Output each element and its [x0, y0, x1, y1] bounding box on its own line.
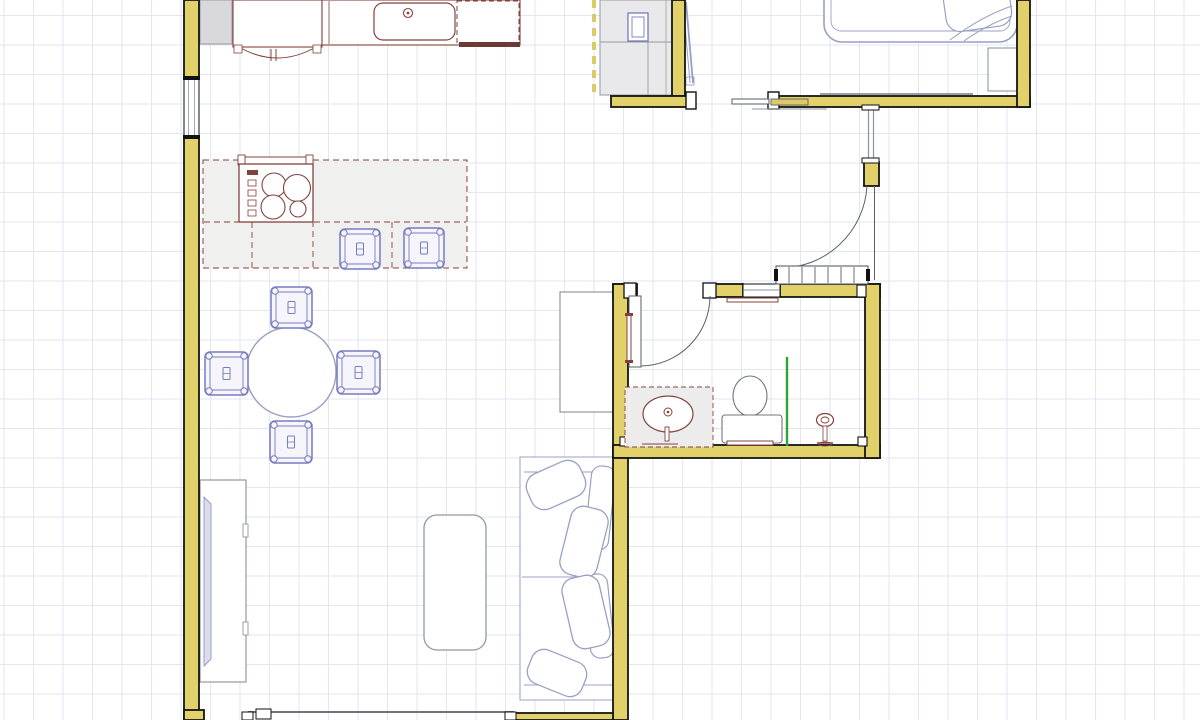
- entry-sidelight[interactable]: [862, 105, 879, 163]
- tv-screen[interactable]: [204, 497, 211, 666]
- dining-chair-bottom[interactable]: [270, 421, 312, 463]
- bath-toilet-brush[interactable]: [817, 414, 834, 447]
- kitchen-counter-sink-run[interactable]: [322, 0, 520, 45]
- wall-living-right[interactable]: [613, 458, 628, 720]
- bed[interactable]: [824, 0, 1017, 42]
- wall-hall-top-a[interactable]: [611, 96, 688, 107]
- wall-bedroom-right[interactable]: [1017, 0, 1030, 107]
- floor-plan-drawing: [0, 0, 1200, 720]
- sofa[interactable]: [520, 456, 617, 701]
- wall-left-main[interactable]: [184, 137, 199, 720]
- closet-handle-box[interactable]: [628, 13, 648, 41]
- dining-chair-top[interactable]: [271, 287, 312, 328]
- kitchen-cooktop[interactable]: [238, 155, 313, 222]
- wall-closet-divider[interactable]: [672, 0, 685, 96]
- window-left-wall[interactable]: [183, 76, 200, 139]
- dining-table[interactable]: [246, 327, 336, 417]
- window-bottom-wall[interactable]: [242, 709, 516, 720]
- kitchen-fridge[interactable]: [233, 0, 322, 61]
- window-bath-wall[interactable]: [743, 284, 780, 297]
- floor-plan-canvas: [0, 0, 1200, 720]
- wall-bottom-right[interactable]: [514, 713, 613, 720]
- coffee-table[interactable]: [424, 515, 486, 650]
- wall-entry-post[interactable]: [864, 162, 879, 186]
- wall-bath-right[interactable]: [865, 284, 880, 458]
- kitchen-stool-2[interactable]: [404, 228, 444, 268]
- hall-cabinet[interactable]: [560, 292, 615, 412]
- kitchen-wall-cabinet[interactable]: [200, 0, 232, 44]
- nightstand[interactable]: [988, 48, 1018, 91]
- dining-chair-right[interactable]: [337, 351, 380, 394]
- bath-toilet[interactable]: [722, 376, 782, 445]
- dining-chair-left[interactable]: [205, 352, 248, 395]
- bath-door[interactable]: [624, 283, 716, 367]
- wall-bottom-left[interactable]: [184, 710, 204, 720]
- bath-vanity-sink[interactable]: [625, 387, 713, 447]
- kitchen-stool-1[interactable]: [340, 229, 380, 269]
- entry-radiator[interactable]: [774, 266, 870, 284]
- bath-shelf[interactable]: [727, 298, 778, 302]
- wall-left-top[interactable]: [184, 0, 199, 78]
